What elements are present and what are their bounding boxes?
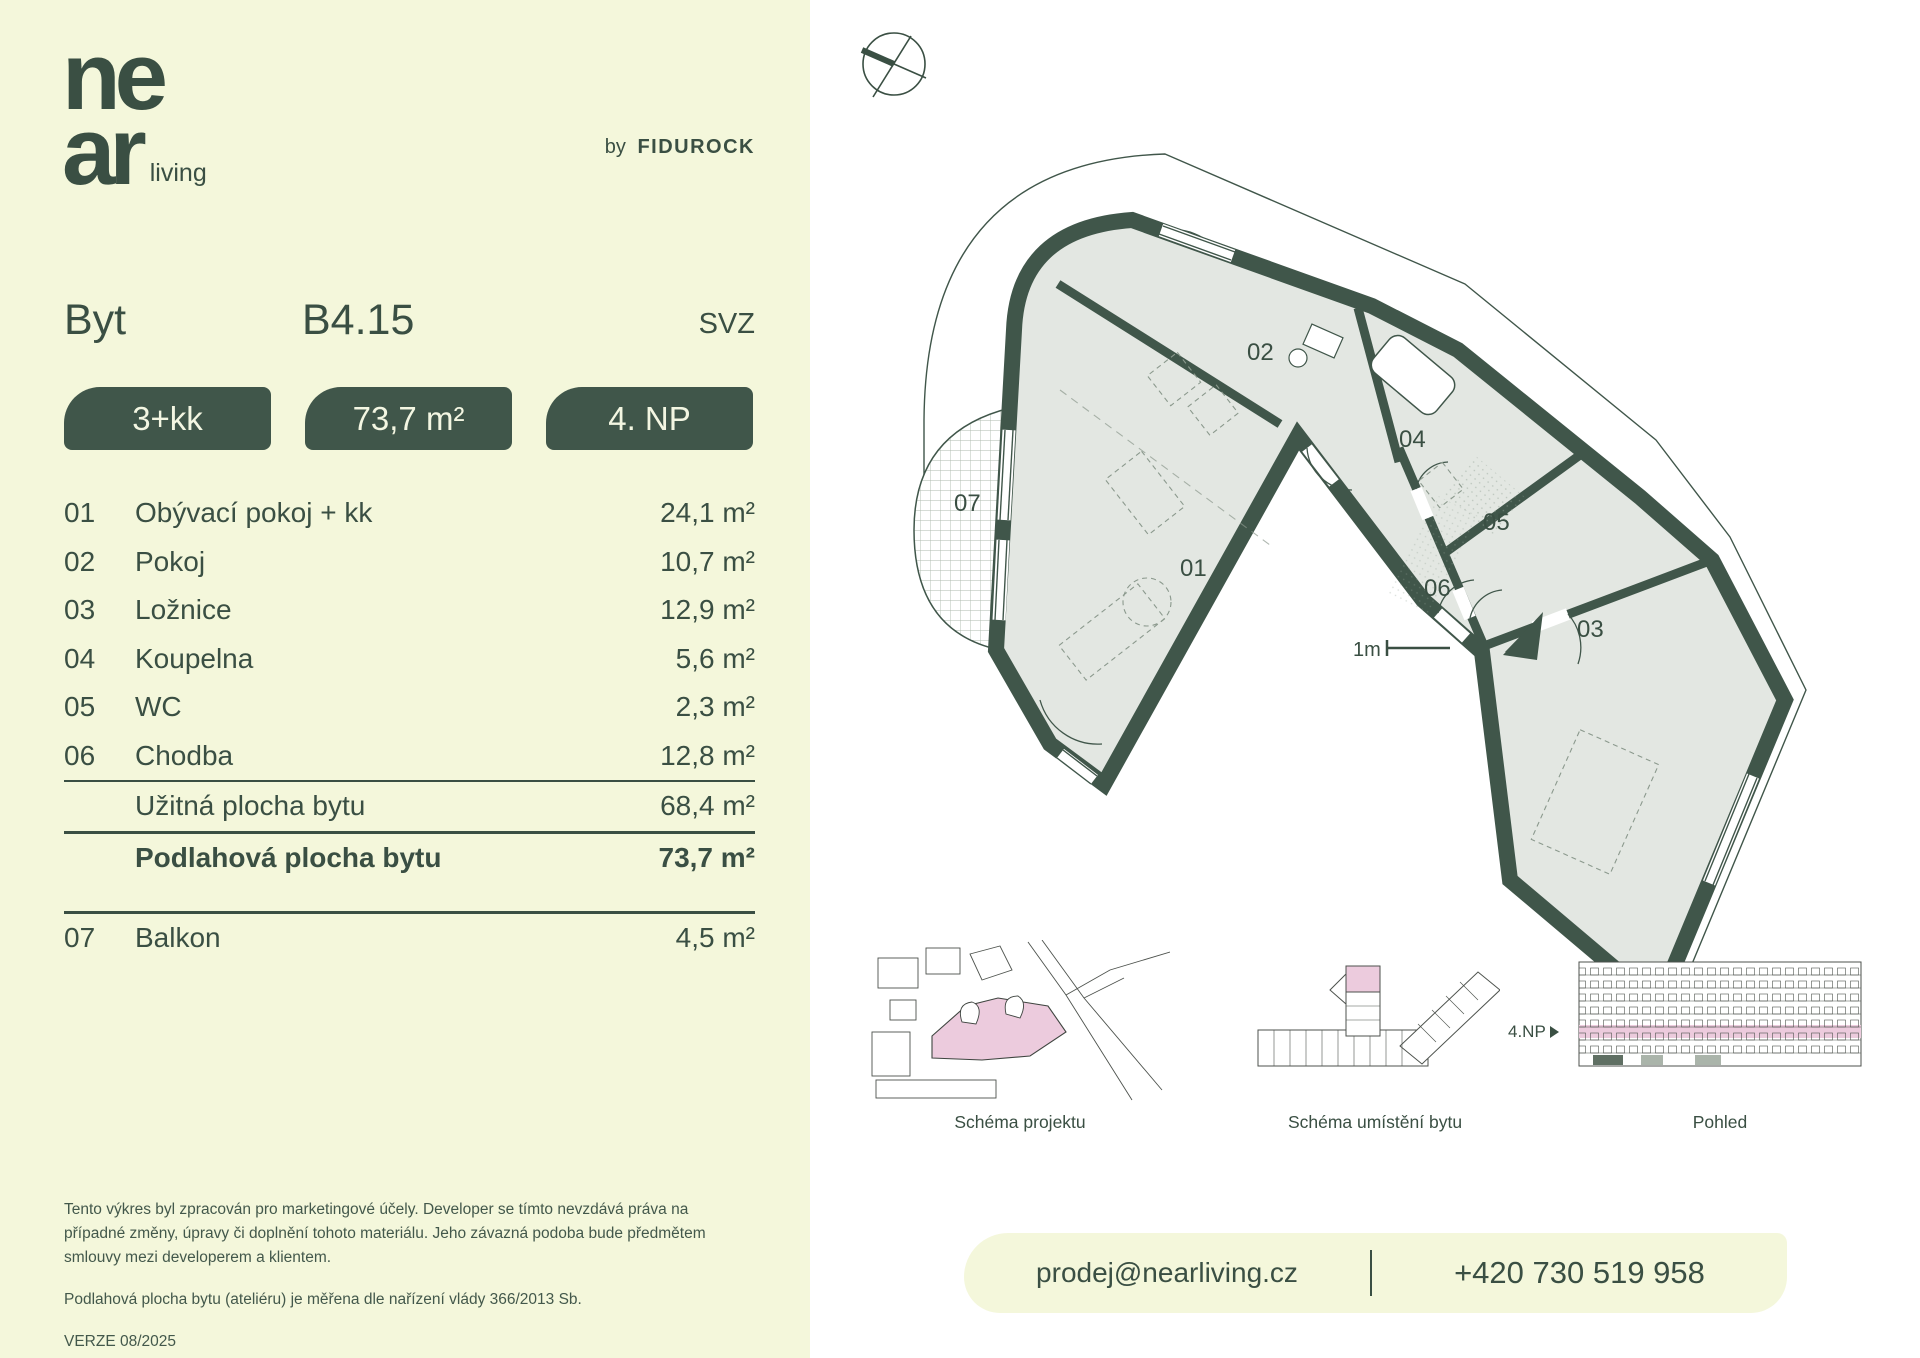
- room-label-05: 05: [1483, 509, 1510, 536]
- usable-area-value: 68,4 m²: [660, 790, 755, 822]
- room-name: Balkon: [135, 922, 676, 954]
- disclaimer-paragraph-1: Tento výkres byl zpracován pro marketing…: [64, 1198, 724, 1270]
- room-number: 06: [64, 740, 135, 772]
- room-label-06: 06: [1424, 575, 1451, 602]
- table-row: 01 Obývací pokoj + kk 24,1 m²: [64, 489, 755, 538]
- room-name: Ložnice: [135, 594, 660, 626]
- room-name: Pokoj: [135, 546, 660, 578]
- usable-area-row: Užitná plocha bytu 68,4 m²: [64, 782, 755, 831]
- logo-suffix: living: [150, 159, 207, 188]
- room-name: Chodba: [135, 740, 660, 772]
- developer-byline: by FIDUROCK: [605, 136, 755, 159]
- contact-email[interactable]: prodej@nearliving.cz: [964, 1233, 1370, 1313]
- room-area: 12,9 m²: [660, 594, 755, 626]
- unit-location-highlight: [1346, 966, 1380, 992]
- version-label: VERZE 08/2025: [64, 1330, 724, 1354]
- project-footprint-highlight: [932, 998, 1066, 1060]
- room-table: 01 Obývací pokoj + kk 24,1 m² 02 Pokoj 1…: [64, 489, 755, 963]
- area-badge: 73,7 m²: [305, 387, 512, 450]
- room-number: 04: [64, 643, 135, 675]
- contact-bar: prodej@nearliving.cz +420 730 519 958: [964, 1233, 1787, 1313]
- building-plan-thumbnail: [1250, 950, 1500, 1085]
- scale-bar: 1m: [1353, 639, 1450, 661]
- balcony-row: 07 Balkon 4,5 m²: [64, 914, 755, 963]
- thumbnail-caption-project: Schéma projektu: [870, 1112, 1170, 1133]
- table-row: 03 Ložnice 12,9 m²: [64, 586, 755, 635]
- room-area: 5,6 m²: [676, 643, 755, 675]
- thumbnail-caption-view: Pohled: [1575, 1112, 1865, 1133]
- room-label-03: 03: [1577, 616, 1604, 643]
- floor-area-value: 73,7 m²: [659, 842, 756, 874]
- floor-badge: 4. NP: [546, 387, 753, 450]
- unit-type-label: Byt: [64, 296, 126, 345]
- floor-area-label: Podlahová plocha bytu: [135, 842, 659, 874]
- room-number: 02: [64, 546, 135, 578]
- site-plan-thumbnail: [870, 940, 1170, 1105]
- room-label-07: 07: [954, 490, 981, 517]
- table-row: 05 WC 2,3 m²: [64, 683, 755, 732]
- room-area: 4,5 m²: [676, 922, 755, 954]
- compass-icon: [862, 33, 926, 97]
- orientation-label: SVZ: [699, 308, 755, 341]
- room-label-02: 02: [1247, 339, 1274, 366]
- table-row: 04 Koupelna 5,6 m²: [64, 635, 755, 684]
- elevation-thumbnail: [1575, 952, 1865, 1072]
- drawing-panel: 07 02 01 04 05 06 03 1m: [810, 0, 1920, 1358]
- room-area: 12,8 m²: [660, 740, 755, 772]
- room-number: 01: [64, 497, 135, 529]
- contact-phone[interactable]: +420 730 519 958: [1372, 1233, 1787, 1313]
- logo-text-line2: ar: [62, 115, 141, 190]
- room-label-04: 04: [1399, 426, 1426, 453]
- room-label-01: 01: [1180, 555, 1207, 582]
- flat-datasheet-page: ne ar living by FIDUROCK Byt B4.15 SVZ 3…: [0, 0, 1920, 1358]
- thumbnail-caption-location: Schéma umístění bytu: [1250, 1112, 1500, 1133]
- table-row: 02 Pokoj 10,7 m²: [64, 538, 755, 587]
- room-number: 03: [64, 594, 135, 626]
- legal-disclaimer: Tento výkres byl zpracován pro marketing…: [64, 1198, 724, 1358]
- unit-id: B4.15: [302, 296, 414, 345]
- floor-tag-label: 4.NP: [1508, 1022, 1546, 1042]
- room-area: 2,3 m²: [676, 691, 755, 723]
- room-number: 07: [64, 922, 135, 954]
- room-name: Koupelna: [135, 643, 676, 675]
- room-area: 24,1 m²: [660, 497, 755, 529]
- elevation-floor-tag: 4.NP: [1508, 1022, 1570, 1042]
- byline-prefix: by: [605, 136, 626, 158]
- room-number: 05: [64, 691, 135, 723]
- info-panel: ne ar living by FIDUROCK Byt B4.15 SVZ 3…: [0, 0, 810, 1358]
- byline-brand: FIDUROCK: [637, 136, 755, 158]
- floor-plan-drawing: 07 02 01 04 05 06 03 1m: [810, 0, 1920, 1358]
- usable-area-label: Užitná plocha bytu: [135, 790, 660, 822]
- room-area: 10,7 m²: [660, 546, 755, 578]
- disclaimer-paragraph-2: Podlahová plocha bytu (ateliéru) je měře…: [64, 1288, 724, 1312]
- layout-badge: 3+kk: [64, 387, 271, 450]
- near-living-logo: ne ar living: [62, 40, 207, 190]
- floor-area-row: Podlahová plocha bytu 73,7 m²: [64, 834, 755, 883]
- scale-label: 1m: [1353, 639, 1381, 661]
- room-name: Obývací pokoj + kk: [135, 497, 660, 529]
- floor-arrow-icon: [1550, 1026, 1559, 1038]
- table-row: 06 Chodba 12,8 m²: [64, 732, 755, 781]
- unit-badges: 3+kk 73,7 m² 4. NP: [64, 387, 753, 450]
- room-name: WC: [135, 691, 676, 723]
